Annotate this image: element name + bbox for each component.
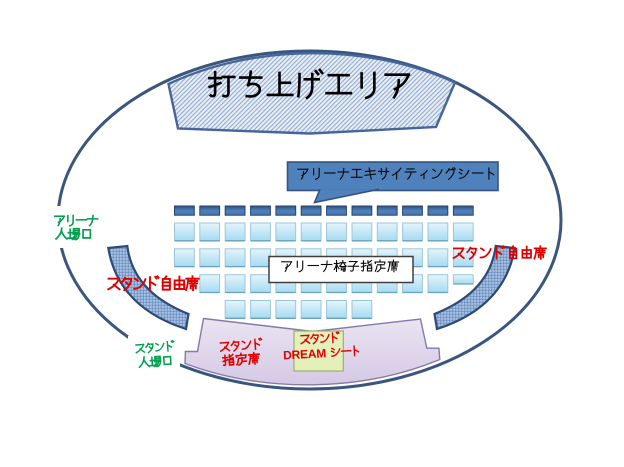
svg-text:DREAM: DREAM — [283, 346, 327, 362]
